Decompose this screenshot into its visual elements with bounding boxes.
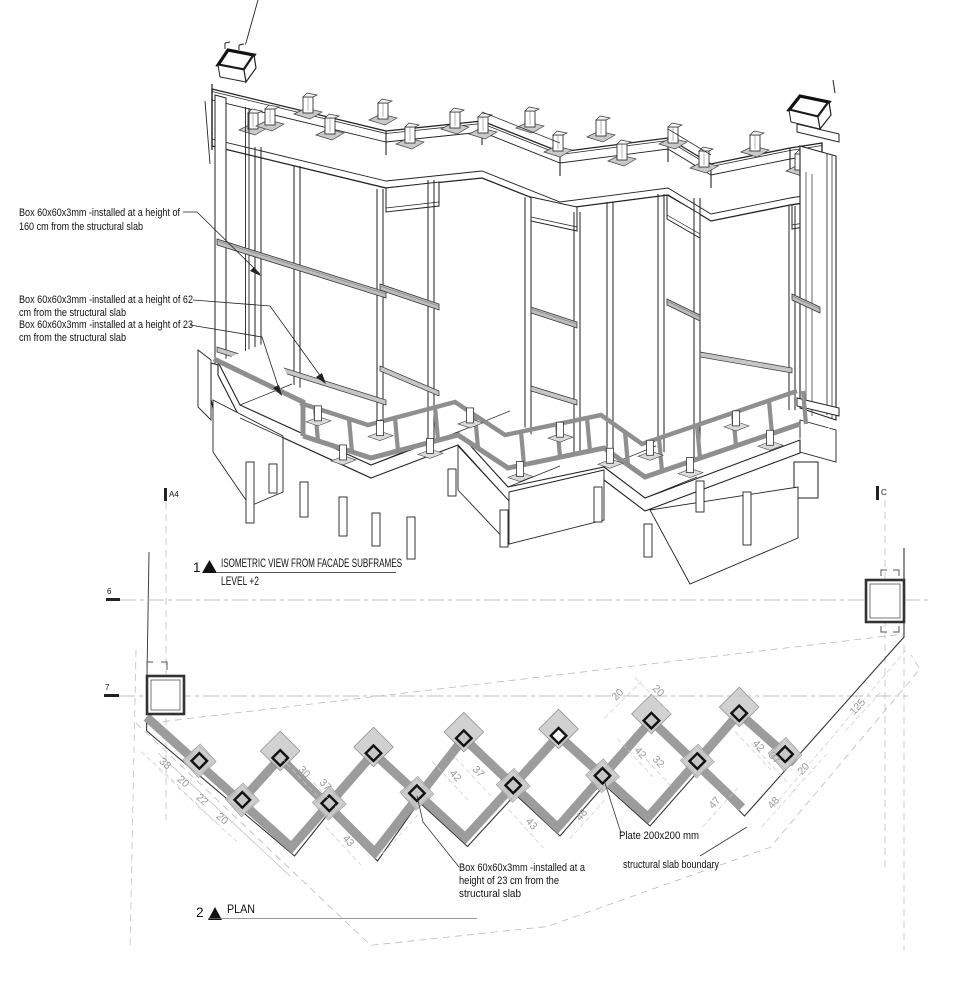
svg-text:7: 7 xyxy=(105,683,110,692)
svg-text:47: 47 xyxy=(706,795,723,812)
svg-text:A4: A4 xyxy=(169,490,179,499)
svg-text:1: 1 xyxy=(193,560,201,575)
svg-text:43: 43 xyxy=(523,816,540,833)
svg-text:Box 60x60x3mm -installed at a: Box 60x60x3mm -installed at a height of … xyxy=(19,319,193,331)
svg-text:20: 20 xyxy=(175,773,192,790)
svg-text:C: C xyxy=(881,488,887,497)
svg-text:22: 22 xyxy=(194,791,211,808)
svg-text:6: 6 xyxy=(107,587,112,596)
svg-text:32: 32 xyxy=(650,754,667,771)
svg-text:Box 60x60x3mm -installed at a: Box 60x60x3mm -installed at a height of xyxy=(19,207,181,219)
svg-text:Plate 200x200 mm: Plate 200x200 mm xyxy=(619,830,699,842)
svg-text:cm from the structural slab: cm from the structural slab xyxy=(19,307,126,319)
svg-text:48: 48 xyxy=(765,795,782,812)
svg-text:structural slab boundary: structural slab boundary xyxy=(623,859,719,871)
svg-text:structural slab: structural slab xyxy=(459,888,521,900)
svg-text:Box 60x60x3mm -installed at a: Box 60x60x3mm -installed at a xyxy=(459,862,586,874)
svg-text:cm from the structural slab: cm from the structural slab xyxy=(19,332,126,344)
svg-text:20: 20 xyxy=(610,686,627,703)
svg-text:height of 23 cm from the: height of 23 cm from the xyxy=(459,875,559,887)
svg-text:160 cm from the structural sla: 160 cm from the structural slab xyxy=(19,221,143,233)
svg-text:37: 37 xyxy=(470,764,487,781)
svg-text:42: 42 xyxy=(447,768,464,785)
svg-text:LEVEL +2: LEVEL +2 xyxy=(221,576,259,588)
svg-text:2: 2 xyxy=(196,905,204,920)
svg-text:Box 60x60x3mm -installed at a: Box 60x60x3mm -installed at a height of … xyxy=(19,294,193,306)
svg-text:20: 20 xyxy=(214,810,231,827)
svg-text:42: 42 xyxy=(632,745,649,762)
svg-text:PLAN: PLAN xyxy=(227,904,255,916)
svg-text:ISOMETRIC VIEW FROM FACADE SUB: ISOMETRIC VIEW FROM FACADE SUBFRAMES xyxy=(221,558,402,570)
